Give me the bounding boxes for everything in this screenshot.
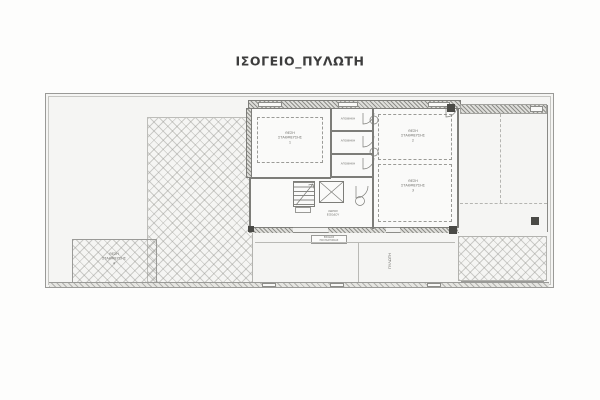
- room-label-storage-1: ΑΠΟΘΗΚΗ: [341, 117, 355, 121]
- column-1: [447, 104, 455, 112]
- entry-hall-line2: ΕΙΣΟΔΟΥ: [327, 213, 339, 216]
- room-label-entry-hall: ΧΩΡΟΣ ΕΙΣΟΔΟΥ: [327, 209, 339, 216]
- room-label-parking-2: ΘΕΣΗ ΣΤΑΘΜΕΥΣΗΣ 2: [401, 129, 425, 143]
- room-label-parking-1: ΘΕΣΗ ΣΤΑΘΜΕΥΣΗΣ 1: [278, 131, 302, 145]
- dimension-line-vertical: [358, 242, 359, 282]
- wall-right: [457, 108, 459, 230]
- room-label-piloti: ΠΥΛΩΤΗ: [388, 253, 392, 269]
- wall-storage-div-2: [330, 153, 373, 155]
- column-2: [449, 226, 457, 234]
- wall-corridor-right: [372, 108, 374, 229]
- courtyard-paving: [147, 117, 258, 283]
- fence-bottom: [49, 282, 549, 288]
- storage2-label: ΑΠΟΘΗΚΗ: [341, 139, 355, 142]
- wall-left-thick: [246, 108, 252, 178]
- paving-right-lower: [458, 236, 547, 281]
- column-3: [531, 217, 539, 225]
- elevator-shaft: [319, 181, 344, 203]
- window-top-2: [338, 102, 358, 107]
- drawing-title: ΙΣΟΓΕΙΟ_ΠΥΛΩΤΗ: [235, 54, 364, 69]
- parking4-line2: ΣΤΑΘΜΕΥΣΗΣ: [102, 257, 126, 261]
- projection-line-horizontal: [460, 203, 547, 204]
- wall-bottom-seg-2: [328, 227, 386, 233]
- parking1-line2: ΣΤΑΘΜΕΥΣΗΣ: [278, 136, 302, 140]
- storage1-label: ΑΠΟΘΗΚΗ: [341, 117, 355, 120]
- dimension-line-horizontal: [255, 242, 455, 243]
- fence-gap-1: [262, 283, 276, 287]
- room-label-parking-4: ΘΕΣΗ ΣΤΑΘΜΕΥΣΗΣ 4: [102, 252, 126, 266]
- parking2-number: 2: [412, 138, 414, 142]
- fence-gap-2: [330, 283, 344, 287]
- parking2-line2: ΣΤΑΘΜΕΥΣΗΣ: [401, 134, 425, 138]
- column-4: [248, 226, 254, 232]
- window-top-1: [258, 102, 282, 107]
- parking1-line1: ΘΕΣΗ: [285, 131, 295, 135]
- staircase: [293, 181, 315, 207]
- storage3-label: ΑΠΟΘΗΚΗ: [341, 162, 355, 165]
- wall-storage-div-1: [330, 130, 373, 132]
- parking3-line1: ΘΕΣΗ: [408, 179, 418, 183]
- parking3-line2: ΣΤΑΘΜΕΥΣΗΣ: [401, 184, 425, 188]
- wall-left: [249, 178, 251, 230]
- wall-storage-div-3: [330, 176, 373, 178]
- canopy-window-box: [530, 106, 543, 112]
- piloti-area: [252, 232, 458, 282]
- wall-bottom-seg-1: [251, 227, 293, 233]
- projection-line-vertical: [500, 114, 501, 203]
- stair-landing: [295, 207, 311, 213]
- room-label-storage-2: ΑΠΟΘΗΚΗ: [341, 139, 355, 143]
- room-label-storage-3: ΑΠΟΘΗΚΗ: [341, 162, 355, 166]
- fence-gap-3: [427, 283, 441, 287]
- terrace-edge-right: [547, 105, 548, 232]
- wall-corridor-left: [330, 108, 332, 178]
- piloti-label: ΠΥΛΩΤΗ: [388, 253, 392, 269]
- parking4-line1: ΘΕΣΗ: [109, 252, 119, 256]
- floor-plan-sheet: ΙΣΟΓΕΙΟ_ΠΥΛΩΤΗ ΘΕΣΗ ΣΤΑΘΜΕΥΣΗΣ 4 ΘΕΣΗ ΣΤ…: [0, 0, 600, 400]
- parking4-number: 4: [113, 261, 115, 265]
- parking1-number: 1: [289, 140, 291, 144]
- room-label-parking-3: ΘΕΣΗ ΣΤΑΘΜΕΥΣΗΣ 3: [401, 179, 425, 193]
- parking2-line1: ΘΕΣΗ: [408, 129, 418, 133]
- parking3-number: 3: [412, 188, 414, 192]
- wall-stair-block-top: [251, 177, 331, 179]
